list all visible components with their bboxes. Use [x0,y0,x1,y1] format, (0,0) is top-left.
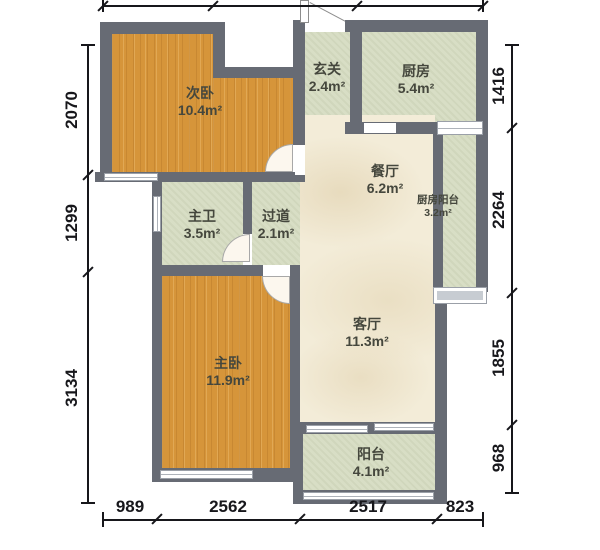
dimension-label: 1416 [489,51,509,121]
room-name: 次卧 [152,85,248,102]
room-area: 3.2m² [396,207,480,220]
wall-segment [435,300,447,504]
window [437,121,483,135]
room-label-secondary-bedroom: 次卧 10.4m² [152,85,248,119]
dimension-label: 3134 [62,353,82,423]
room-label-dining: 餐厅 6.2m² [337,163,433,197]
dimension-label: 989 [95,497,165,517]
dimension-line-top [103,5,483,7]
window [434,288,486,303]
room-label-kitchen-balcony: 厨房阳台 3.2m² [396,194,480,220]
wall-segment [345,20,488,32]
entry-door-leaf [300,0,309,23]
dimension-label: 1299 [62,188,82,258]
room-dining-living-floor [300,115,435,424]
wall-segment [100,22,112,182]
dimension-label: 2517 [333,497,403,517]
room-name: 客厅 [319,316,415,333]
room-name: 过道 [228,208,324,225]
dimension-label: 968 [489,423,509,493]
room-label-master-bedroom: 主卧 11.9m² [180,355,276,389]
window [160,470,253,479]
entry-door-opening [305,22,345,32]
sliding-door-panel [374,423,434,431]
room-label-kitchen: 厨房 5.4m² [368,63,464,97]
dimension-label: 2562 [193,497,263,517]
dimension-cap [81,44,95,46]
room-area: 2.1m² [228,225,324,242]
room-area: 4.1m² [323,463,419,480]
dimension-cap [505,44,519,46]
window [104,173,158,181]
floorplan-image: 次卧 10.4m² 玄关 2.4m² 厨房 5.4m² 餐厅 6.2m² 厨房阳… [0,0,600,550]
dimension-cap [81,502,95,504]
door-opening [295,145,305,175]
room-label-living: 客厅 11.3m² [319,316,415,350]
room-area: 2.4m² [279,78,375,95]
room-area: 5.4m² [368,80,464,97]
door-opening [364,123,396,133]
room-area: 11.3m² [319,333,415,350]
room-name: 餐厅 [337,163,433,180]
room-name: 阳台 [323,446,419,463]
dimension-label: 2264 [489,175,509,245]
room-area: 10.4m² [152,102,248,119]
dimension-line-bottom [103,519,483,521]
room-label-corridor: 过道 2.1m² [228,208,324,242]
room-label-entry: 玄关 2.4m² [279,61,375,95]
wall-segment [213,22,225,78]
room-name: 玄关 [279,61,375,78]
wall-segment [152,265,263,276]
dimension-label: 1855 [489,323,509,393]
sliding-door-panel [306,425,368,433]
door-opening [263,265,290,276]
room-area: 11.9m² [180,372,276,389]
room-name: 厨房 [368,63,464,80]
wall-segment [476,20,488,292]
dimension-label: 823 [425,497,495,517]
dimension-label: 2070 [62,75,82,145]
room-name: 主卧 [180,355,276,372]
room-label-balcony: 阳台 4.1m² [323,446,419,480]
room-name: 厨房阳台 [396,194,480,207]
wall-segment [100,22,225,34]
